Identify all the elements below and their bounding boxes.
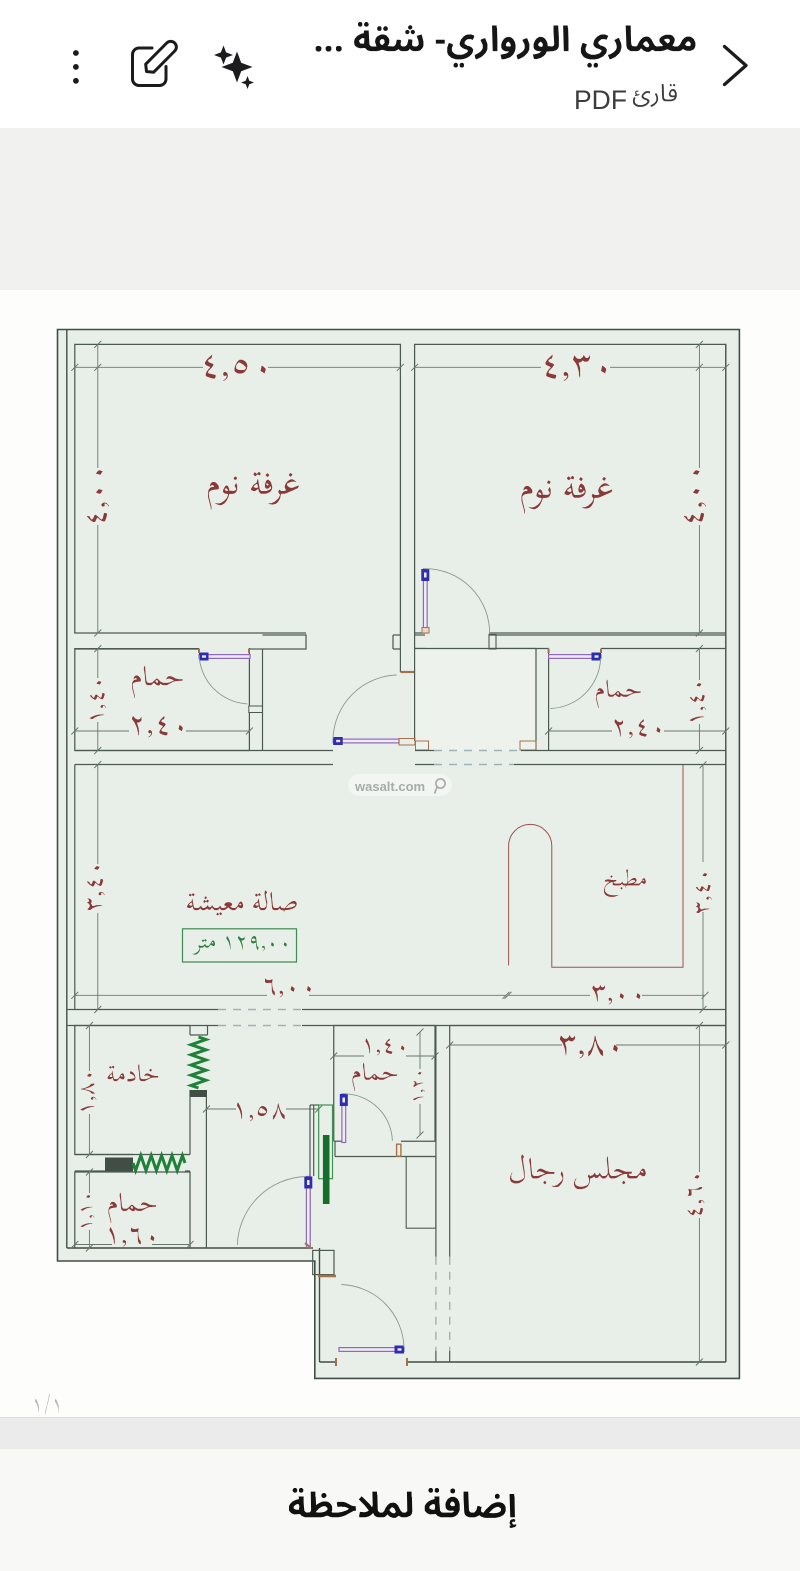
- svg-text:PDF: PDF: [574, 85, 627, 115]
- svg-text:wasalt.com: wasalt.com: [354, 779, 425, 794]
